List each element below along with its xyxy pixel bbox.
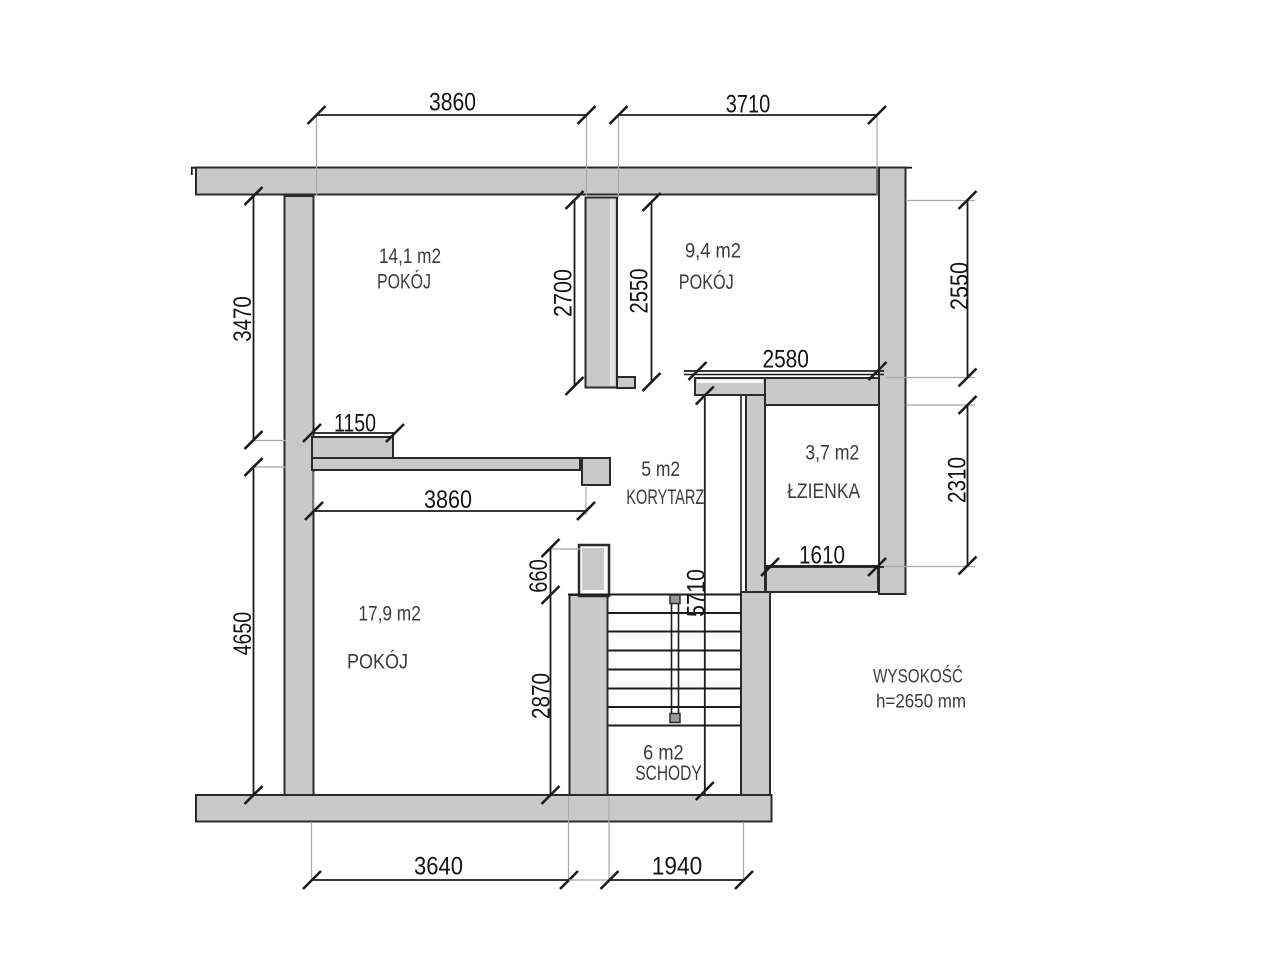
- svg-text:h=2650 mm: h=2650 mm: [876, 692, 966, 713]
- svg-text:2700: 2700: [550, 269, 578, 317]
- svg-text:2550: 2550: [946, 262, 974, 310]
- svg-text:ŁZIENKA: ŁZIENKA: [787, 480, 860, 503]
- svg-text:4650: 4650: [229, 612, 257, 656]
- svg-text:POKÓJ: POKÓJ: [347, 651, 408, 674]
- svg-text:3860: 3860: [424, 486, 472, 514]
- svg-text:POKÓJ: POKÓJ: [377, 271, 431, 294]
- svg-text:3710: 3710: [726, 91, 771, 119]
- svg-text:2310: 2310: [944, 457, 972, 503]
- svg-text:2550: 2550: [626, 269, 654, 314]
- svg-text:5710: 5710: [683, 569, 711, 617]
- svg-text:660: 660: [525, 559, 553, 593]
- svg-text:SCHODY: SCHODY: [635, 762, 702, 785]
- svg-text:3470: 3470: [229, 296, 257, 342]
- svg-text:POKÓJ: POKÓJ: [679, 271, 734, 294]
- svg-text:3860: 3860: [429, 89, 476, 117]
- svg-text:WYSOKOŚĆ: WYSOKOŚĆ: [873, 666, 963, 688]
- svg-text:6 m2: 6 m2: [643, 741, 684, 764]
- svg-text:17,9 m2: 17,9 m2: [358, 603, 421, 626]
- svg-text:2580: 2580: [762, 346, 809, 374]
- svg-text:1150: 1150: [334, 410, 376, 438]
- svg-text:KORYTARZ: KORYTARZ: [626, 486, 704, 509]
- svg-text:2870: 2870: [528, 673, 556, 719]
- svg-text:3,7 m2: 3,7 m2: [805, 442, 859, 465]
- svg-text:14,1 m2: 14,1 m2: [379, 245, 441, 268]
- svg-text:3640: 3640: [414, 853, 463, 881]
- svg-text:1610: 1610: [799, 542, 845, 570]
- svg-text:5 m2: 5 m2: [641, 458, 680, 481]
- svg-text:9,4 m2: 9,4 m2: [685, 240, 741, 263]
- svg-text:1940: 1940: [652, 853, 703, 881]
